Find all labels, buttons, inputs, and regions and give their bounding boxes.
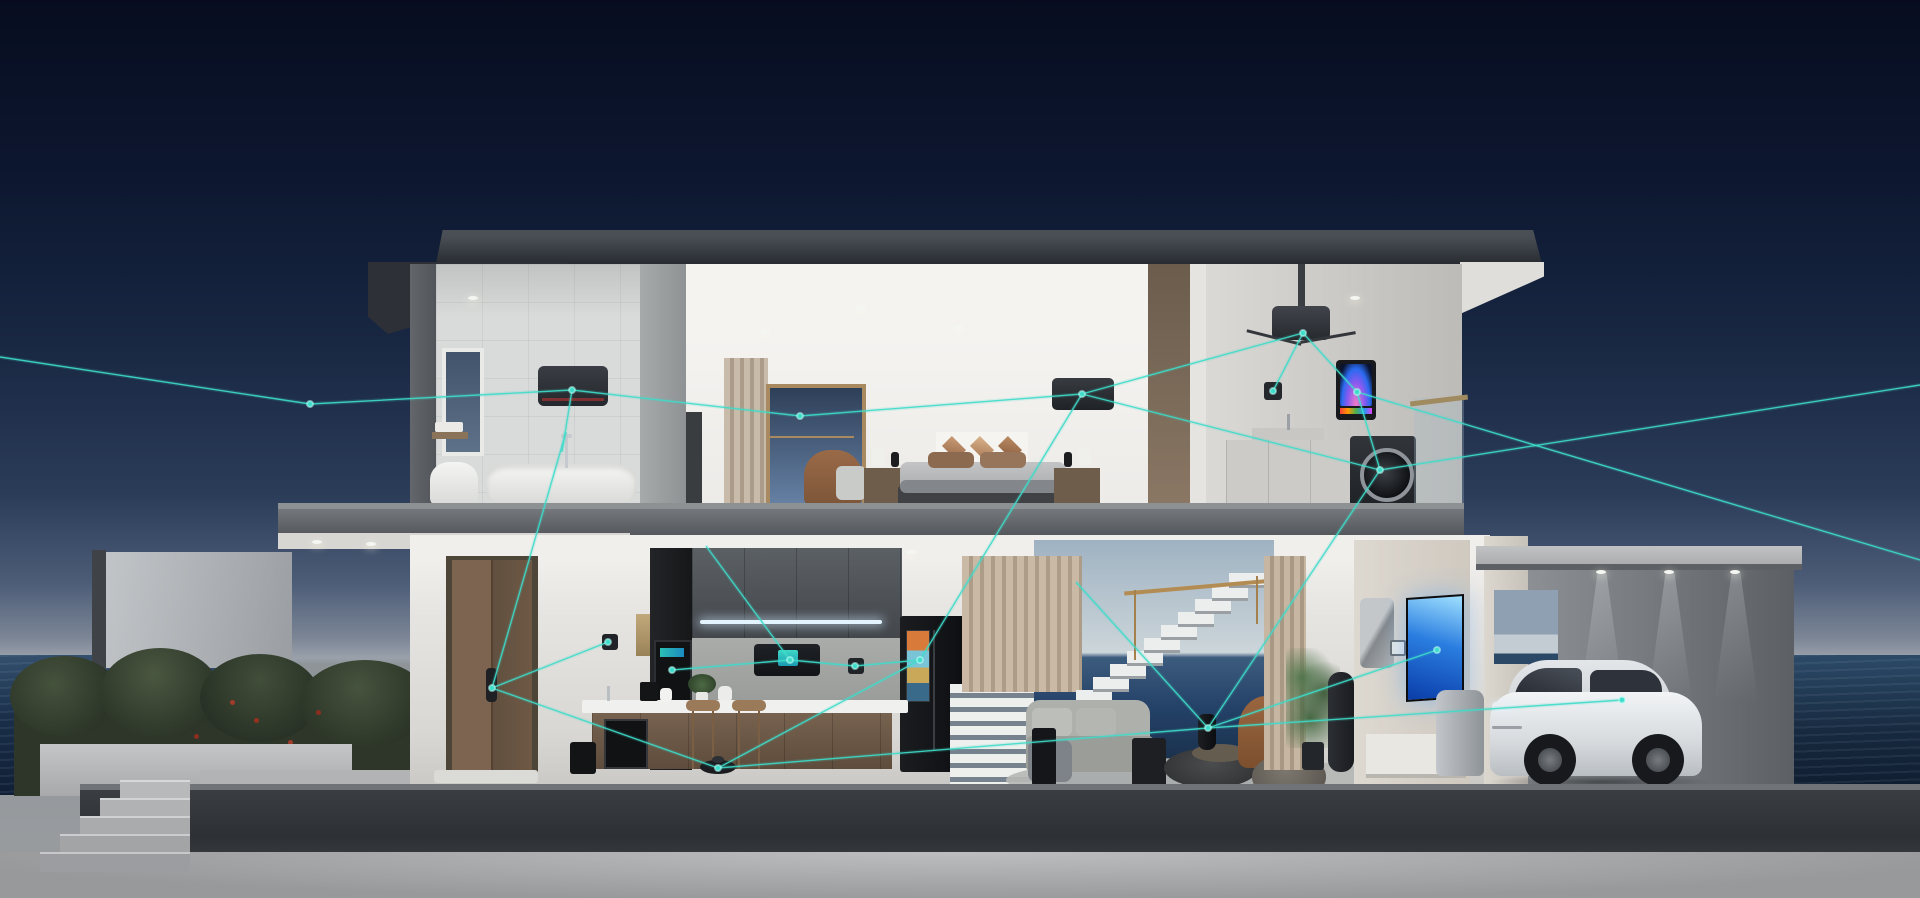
side-table [1132,738,1166,788]
stair-step [1127,651,1163,666]
garden-step [80,816,190,836]
recessed-light [856,306,866,310]
stair-step [1110,664,1146,679]
bedroom-ac-unit [1052,378,1114,410]
water-heater-pixel-strip [1340,408,1372,414]
stair-step [1212,586,1248,601]
main-roof [436,230,1542,264]
island-plant [688,674,716,694]
stair-railing-post [1134,590,1136,660]
ceiling-projector [1272,306,1330,340]
kitchen-blinds-wall [962,556,1082,692]
wall-thermostat [1390,640,1406,656]
bedroom-door-frame [686,412,702,506]
entry-wall-switch [602,634,618,650]
hedge-flowers [230,700,235,705]
stair-step [1178,612,1214,627]
washer-door [1360,448,1414,502]
recessed-light [1596,570,1606,574]
island-faucet [607,686,610,701]
recessed-light [760,330,770,334]
bed-pillow [928,452,974,468]
under-cabinet-led [700,620,882,624]
bar-stool [686,700,720,711]
stair-step [1144,638,1180,653]
fridge-door-screen [906,630,930,702]
wall-sculpture [1360,598,1394,668]
bathroom-ac-accent [542,398,604,401]
water-heater-screen [1340,364,1372,406]
countertop-smart-speaker [660,688,672,702]
laundry-smart-panel [1264,382,1282,400]
recessed-light [366,542,376,546]
robot-vacuum-top [712,756,724,763]
floor-speaker [1032,728,1056,786]
balcony-glass-railing [1414,398,1464,506]
garden-fence-wall [106,552,292,668]
floor-air-purifier [570,742,596,774]
smart-door-lock [486,668,497,702]
table-lamp [872,448,885,466]
second-floor-pillar [1190,264,1206,506]
bedroom-curtain [724,358,768,506]
toilet [430,462,478,506]
plant-pot [1302,742,1324,770]
island-wine-cooler [604,719,648,769]
bar-stool-legs [738,711,760,769]
laundry-cabinets [1226,440,1354,506]
garden-step [100,798,190,818]
garden-fence-post [92,550,106,668]
wall-tv [1406,594,1464,702]
smart-home-scene [0,0,1920,898]
projector-ceiling-mount [1298,264,1305,308]
decor-vase [1064,452,1072,467]
door-mat [434,770,538,783]
foreground-ground [0,852,1920,898]
bar-stool [732,700,766,711]
recessed-light [954,326,964,330]
oven-screen [660,648,684,657]
range-hood-screen [778,650,798,666]
kitchen-upper-cabinets [692,548,902,638]
network-node-left-entry [307,401,313,407]
bathtub [486,464,636,506]
bed-duvet-fold [900,480,1066,493]
smart-speaker-hub [1198,714,1216,750]
laundry-faucet [1287,414,1290,430]
partition-wall [640,264,686,506]
garage-roof-edge [1476,564,1802,570]
sea-right [1784,655,1920,795]
stair-step [1195,599,1231,614]
roof-soffit-right [1460,262,1544,314]
table-lamp [1078,448,1091,466]
front-door [452,560,532,772]
stair-step [1093,677,1129,692]
kettle [718,686,732,700]
recessed-light [1664,570,1674,574]
tub-faucet-spout [561,434,572,438]
coffee-machine [640,682,658,701]
stair-step [1161,625,1197,640]
car-grille-line [1492,726,1522,729]
stair-railing-post [1256,576,1258,624]
bed-pillow [980,452,1026,468]
tub-floor-faucet [565,436,568,468]
decor-vase [891,452,899,467]
bathroom-shelf [432,432,468,439]
smart-tower-fan [1328,672,1354,772]
fridge-handle [933,630,935,750]
garden-step [60,834,190,854]
platform-fascia [80,790,1920,856]
garden-step [120,780,190,800]
armchair-throw [836,466,866,500]
garage-roof [1476,546,1802,566]
nightstand [1054,468,1100,506]
car-headlight [1492,702,1514,711]
recessed-light [312,540,322,544]
bathroom-window [442,348,484,456]
floor-slab-face [278,509,1464,535]
bedroom-wood-wall [1148,264,1190,506]
garage-window-opening [1494,590,1558,664]
sofa-cushion [1076,708,1116,736]
bedroom-window-mullion [770,436,854,438]
recessed-light [906,550,916,554]
car-wheel-hub [1646,748,1670,772]
recessed-light [1730,570,1740,574]
smart-trash-bin [1436,690,1484,776]
recessed-light [1350,296,1360,300]
kitchen-smart-switch [848,658,864,674]
garden-step [40,852,190,872]
recessed-light [468,296,478,300]
car-wheel-hub [1538,748,1562,772]
bathroom-towels [435,422,463,432]
